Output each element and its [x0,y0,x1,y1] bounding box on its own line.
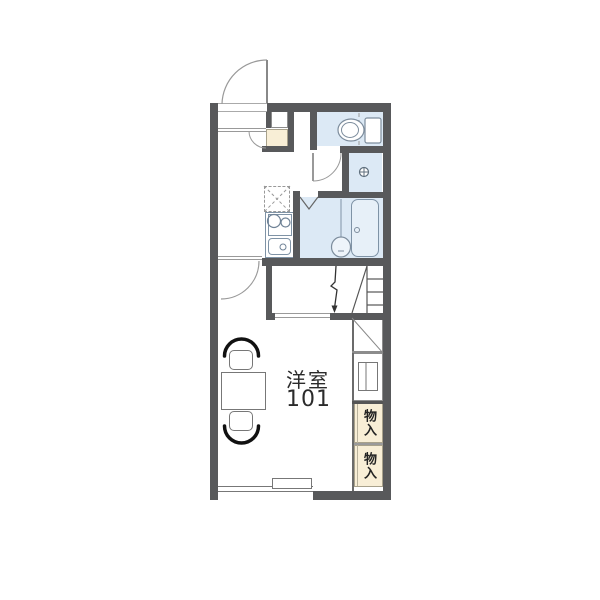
storage-lower: 物入 [354,445,383,487]
stair-room-opening [275,313,330,318]
stair-direction-arrow [331,266,337,308]
kitchen-corridor-opening [218,256,262,260]
wall-middle [262,258,391,266]
window-pane [272,478,312,489]
chair-bottom [229,411,253,431]
corridor-door-arc [221,261,259,299]
floorplan-canvas: 物入 物入 [0,0,600,600]
wall-toilet-left [310,112,317,150]
storage-upper-label: 物入 [355,404,382,442]
wall-left [210,103,218,500]
stair-arrowhead [332,306,338,314]
wall-stair-bottom-left [267,313,275,320]
storage-upper: 物入 [354,403,383,443]
water-heater-unit [358,362,378,391]
toilet-door-arc [313,153,341,181]
chair-top [229,350,253,370]
ladder-diagonal [352,266,367,313]
wall-pan-left [342,148,349,193]
entrance-opening [218,103,267,112]
refrigerator-space [264,186,290,212]
wall-bath-left [293,191,300,258]
wall-column-left-line [352,320,354,491]
column-divider-1 [352,351,383,353]
linework-layer [0,0,600,600]
column-divider-2 [352,401,383,404]
table [221,372,266,410]
wall-right [383,103,391,500]
wall-stair-bottom-right [330,313,391,320]
entrance-door-arc [222,60,267,104]
laundry-pan-room [349,153,382,192]
stove-burners-box [268,214,292,236]
window-gap [218,491,313,500]
storage-door-line [357,404,358,486]
room-number-label: 101 [286,387,331,412]
toilet-room [317,112,383,146]
column-divider-3 [354,443,383,445]
wall-corridor-right [266,258,272,320]
under-stair-space [352,318,383,353]
bathtub [351,199,379,257]
storage-lower-label: 物入 [355,446,382,486]
genkan-step-line [218,128,266,132]
kitchen-sink [268,238,291,255]
wall-entry-horizontal [262,146,294,152]
entry-closet [271,110,288,128]
shoe-cabinet [266,129,288,147]
wall-bath-top [318,191,349,198]
